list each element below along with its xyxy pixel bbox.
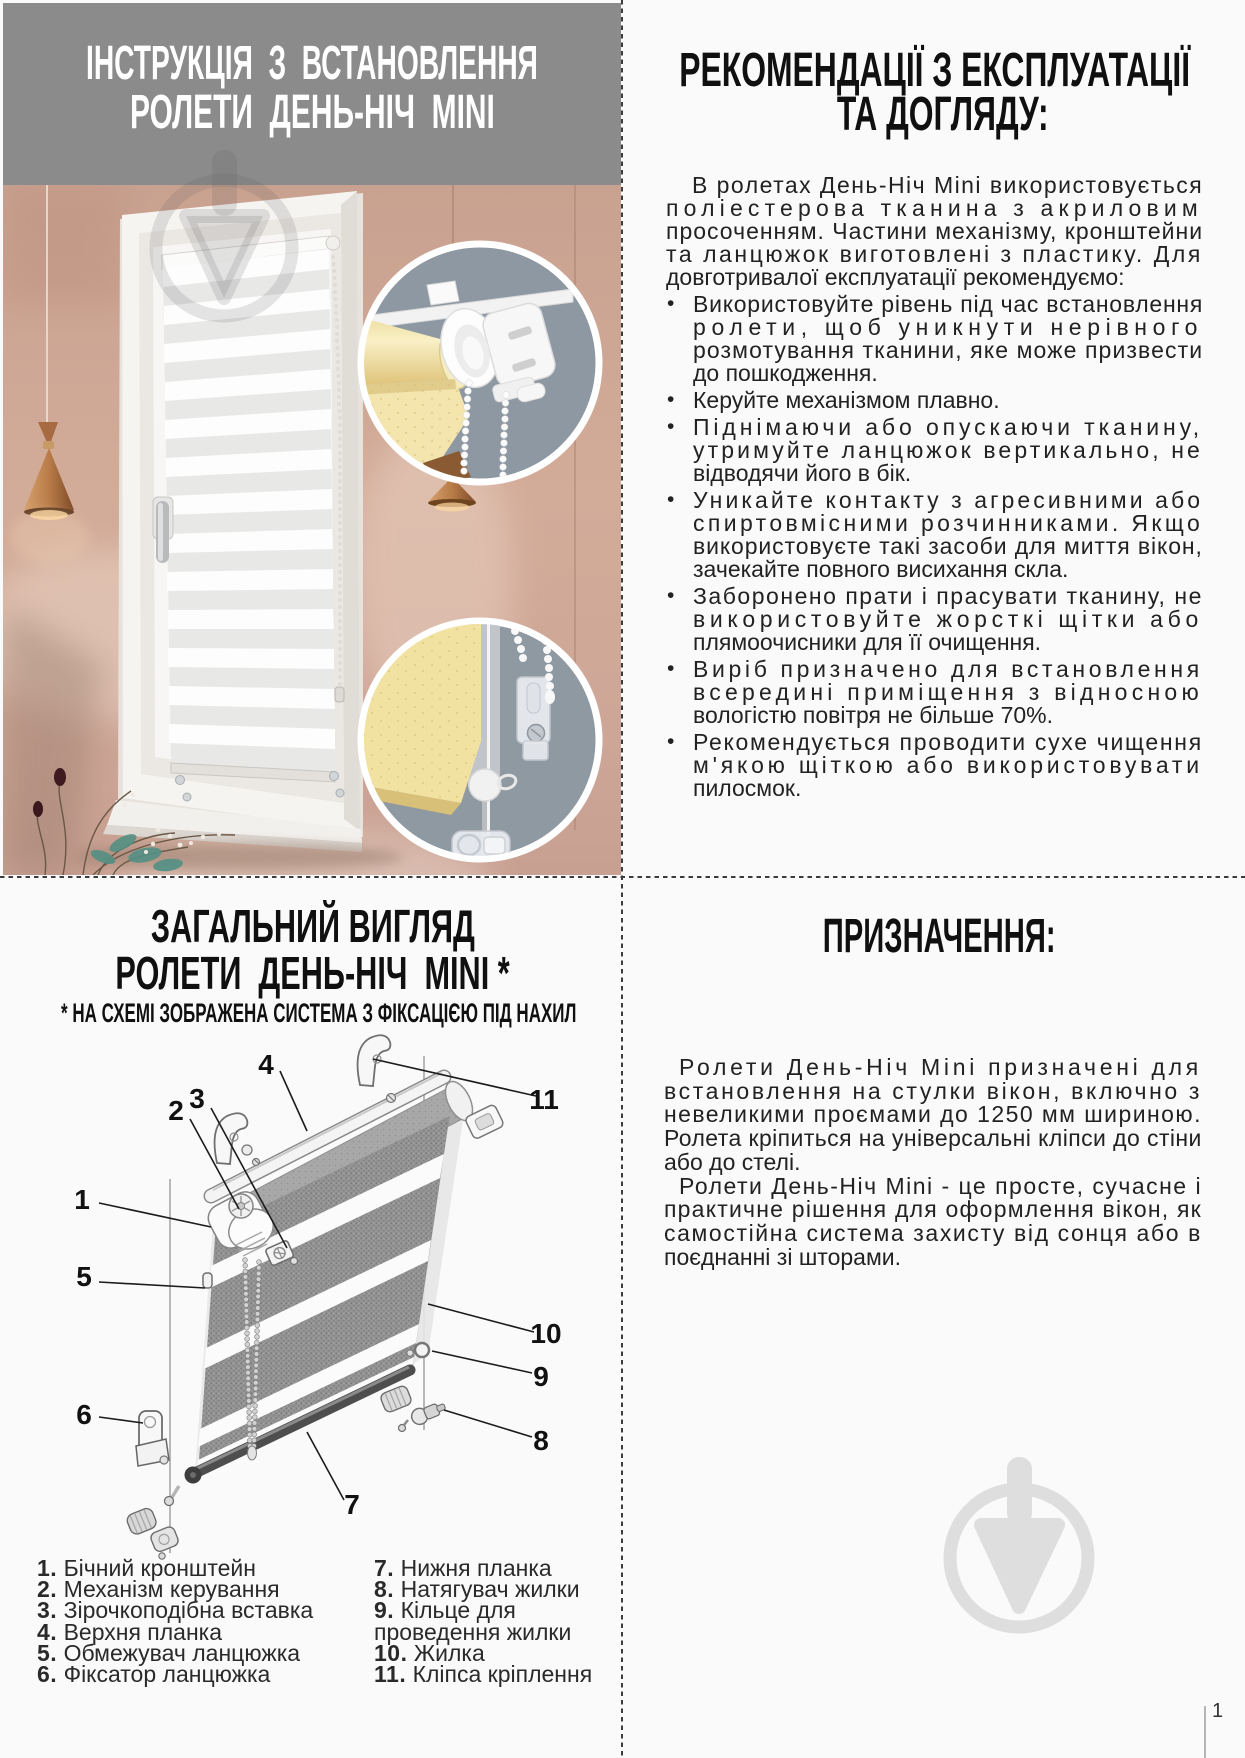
svg-text:6: 6 bbox=[76, 1399, 92, 1430]
svg-text:9: 9 bbox=[533, 1361, 549, 1392]
svg-text:8: 8 bbox=[533, 1425, 549, 1456]
svg-text:11: 11 bbox=[529, 1084, 559, 1115]
svg-text:1: 1 bbox=[74, 1184, 90, 1215]
svg-text:4: 4 bbox=[258, 1049, 274, 1080]
svg-text:10: 10 bbox=[530, 1318, 561, 1349]
svg-text:5: 5 bbox=[76, 1261, 92, 1292]
svg-text:3: 3 bbox=[189, 1083, 205, 1114]
svg-text:7: 7 bbox=[344, 1489, 360, 1520]
svg-text:2: 2 bbox=[168, 1095, 184, 1126]
